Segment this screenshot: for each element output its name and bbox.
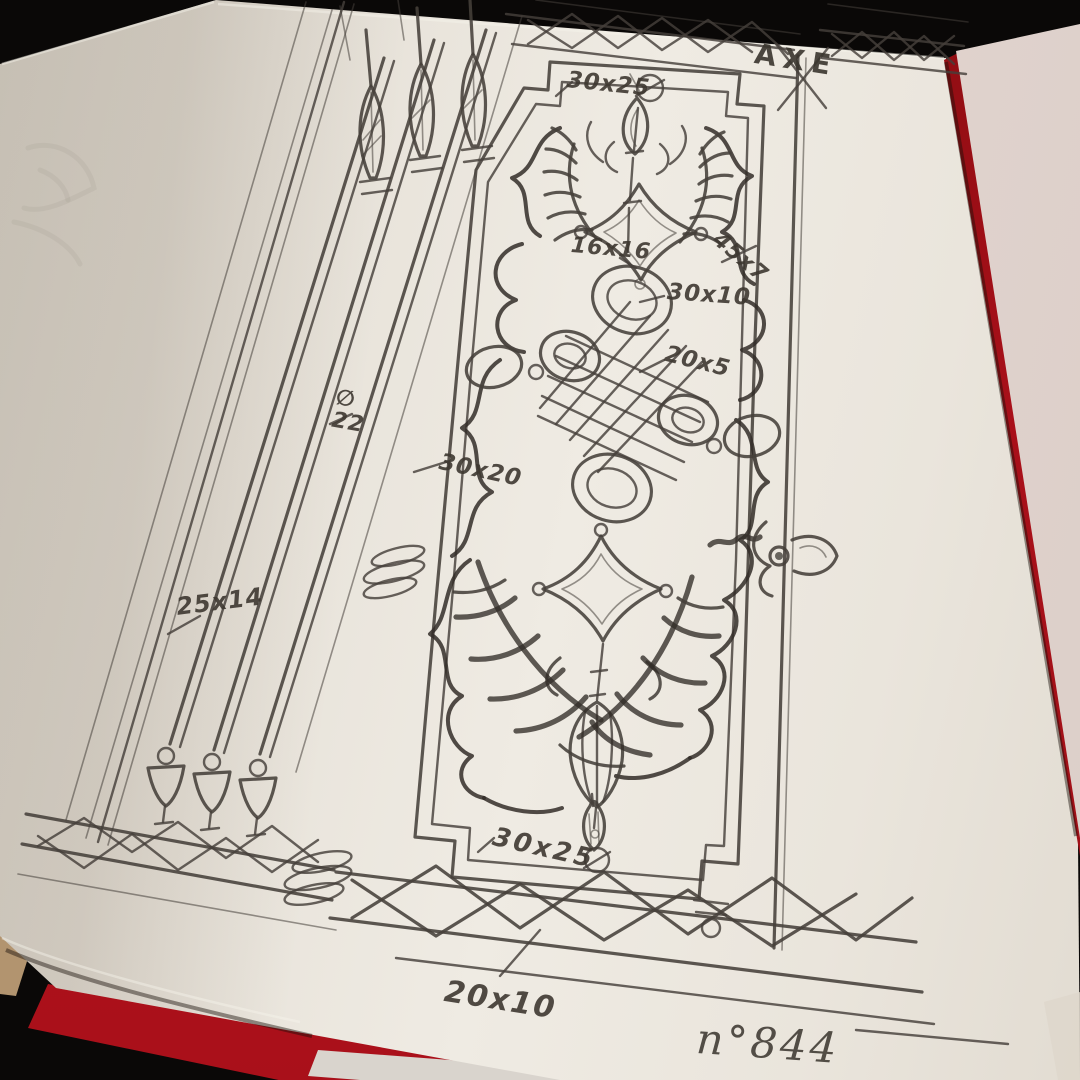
dim-label-bottom-tab: 30x25 [490,824,598,874]
dim-label-knot-loop: 30x10 [666,280,751,310]
dim-label-panel-scroll: 30x20 [437,450,524,491]
drawing-number: n°844 [695,1018,841,1070]
axis-label: AXE [753,40,840,81]
dim-label-left-bars: 25x14 [175,584,265,620]
dim-label-right-frame: 45x7 [708,228,772,287]
annotation-layer: AXE 30x25 16x16 45x7 30x10 20x5 ∅ 22 30x… [0,0,1080,1080]
dim-label-boss-pair: 16x16 [570,234,652,264]
dim-label-bottom-lattice: 20x10 [442,976,558,1025]
dim-label-top-tab: 30x25 [565,68,651,101]
dim-label-bar-diameter: ∅ 22 [330,386,377,438]
dim-label-knot-bar: 20x5 [662,342,733,382]
photo-scene: AXE 30x25 16x16 45x7 30x10 20x5 ∅ 22 30x… [0,0,1080,1080]
